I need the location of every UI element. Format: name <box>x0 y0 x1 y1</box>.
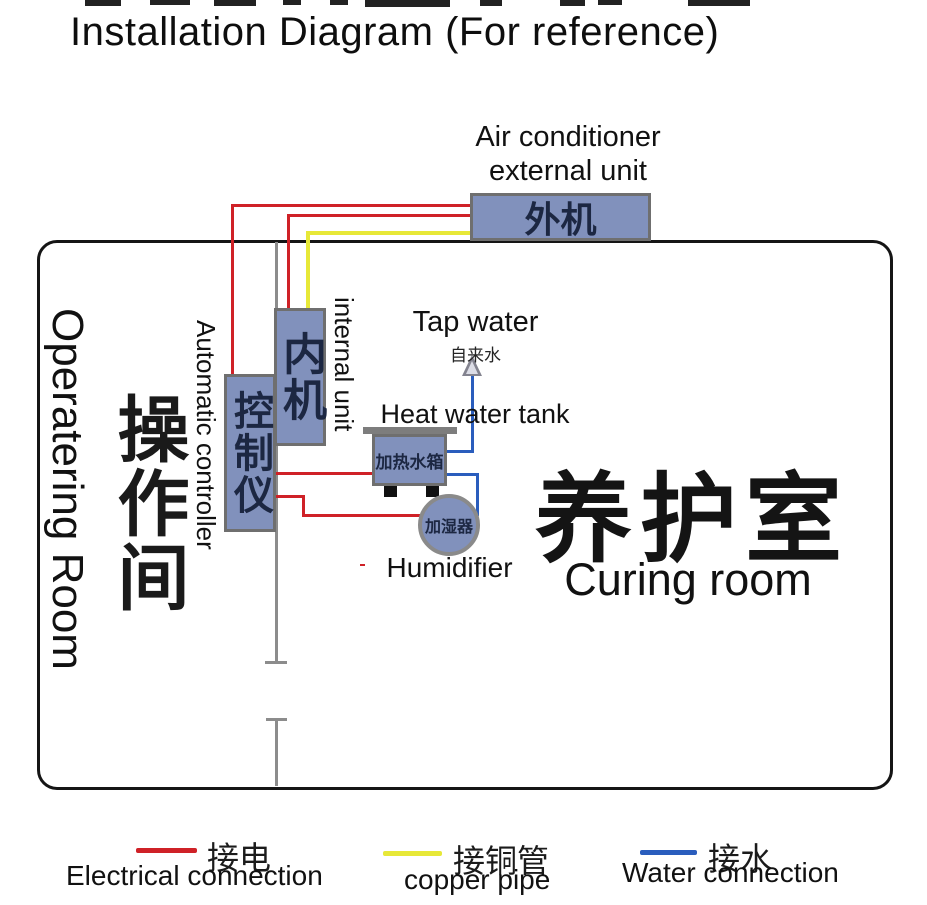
heat-water-tank-label-zh: 加热水箱 <box>376 448 444 473</box>
internal-unit-label-en: internal unit <box>328 297 359 487</box>
curing-room-label-en: Curing room <box>538 554 838 606</box>
tap-water-label-en: Tap water <box>383 306 568 339</box>
external-unit-caption-line2: external unit <box>438 154 698 188</box>
copper-pipe-line <box>307 231 470 235</box>
humidifier-label-zh: 加湿器 <box>425 513 473 537</box>
electrical-line <box>232 204 470 207</box>
electrical-line <box>302 495 305 516</box>
external-unit-box: 外机 <box>470 193 651 241</box>
legend-water-line-icon <box>640 850 697 855</box>
internal-unit-label-zh: 内机 <box>268 331 332 423</box>
electrical-line <box>288 214 470 217</box>
legend-electrical-en: Electrical connection <box>66 860 323 892</box>
humidifier-label-en: Humidifier <box>367 552 532 584</box>
artifact-bar <box>480 0 502 6</box>
external-unit-label: 外机 <box>524 191 596 243</box>
water-line <box>446 450 474 453</box>
operating-room-label-zh: 操作间 <box>94 392 199 632</box>
legend-copper-line-icon <box>383 851 442 856</box>
electrical-line <box>276 495 305 498</box>
electrical-line <box>287 214 290 310</box>
external-unit-caption: Air conditioner external unit <box>438 120 698 188</box>
artifact-bar <box>214 0 256 6</box>
heat-water-tank-box: 加热水箱 <box>372 434 447 486</box>
artifact-bar <box>330 0 348 5</box>
partition-wall-lower <box>275 718 278 786</box>
internal-unit-box: 内机 <box>274 308 326 446</box>
heat-water-tank-label-en: Heat water tank <box>360 399 590 430</box>
electrical-line <box>231 204 234 375</box>
artifact-bar <box>283 0 301 5</box>
legend-water-en: Water connection <box>622 857 839 889</box>
humidifier-circle: 加湿器 <box>418 494 480 556</box>
operating-room-label-en: Operatering Room <box>42 308 92 718</box>
water-line <box>476 473 479 516</box>
artifact-bar <box>688 0 750 6</box>
red-dash-artifact <box>360 564 365 566</box>
tap-water-label-zh: 自来水 <box>383 341 568 366</box>
legend-electrical-line-icon <box>136 848 197 853</box>
door-tick-top <box>265 661 287 664</box>
legend-copper-en: copper pipe <box>404 864 550 896</box>
controller-label-en: Automatic controller <box>190 320 221 610</box>
artifact-bar <box>150 0 190 5</box>
tank-foot-left <box>384 486 397 497</box>
copper-pipe-line <box>306 231 310 310</box>
water-line <box>446 473 479 476</box>
installation-diagram: Installation Diagram (For reference) Air… <box>0 0 927 905</box>
electrical-line <box>276 472 375 475</box>
artifact-bar <box>365 0 450 7</box>
artifact-bar <box>85 0 121 6</box>
artifact-bar <box>560 0 585 6</box>
external-unit-caption-line1: Air conditioner <box>438 120 698 154</box>
page-title: Installation Diagram (For reference) <box>70 10 719 55</box>
electrical-line <box>302 514 420 517</box>
artifact-bar <box>598 0 622 5</box>
